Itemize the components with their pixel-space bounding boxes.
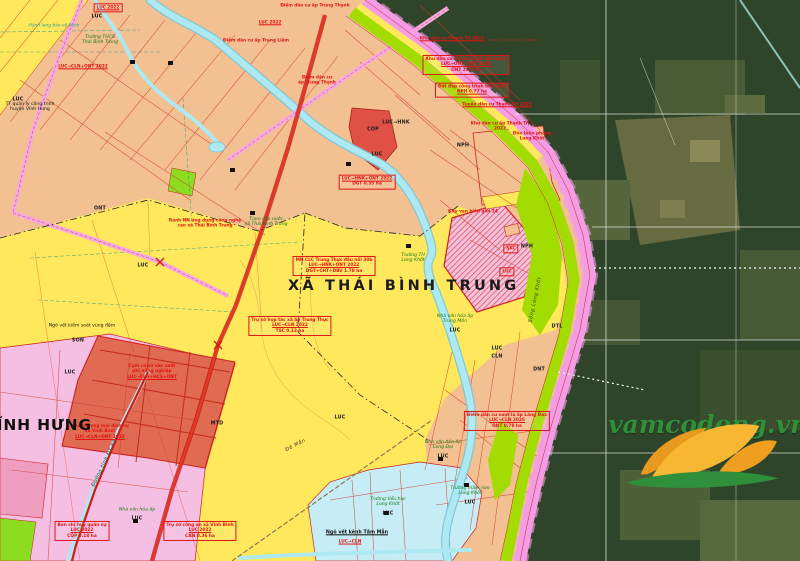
- planning-map-viewport[interactable]: LUCLUCLUCLUCLUCLUCLUC→HNKLUCCLNONTMTDSON…: [0, 0, 800, 561]
- commune-label: XÃ THÁI BÌNH TRUNG: [288, 278, 519, 294]
- green-parcel: [0, 518, 36, 561]
- watermark-logo: vamcodong.vn: [608, 418, 794, 439]
- pink-parcels-corner: [0, 458, 48, 518]
- green-parcel: [168, 168, 196, 196]
- rice-leaves-icon: [608, 418, 794, 488]
- neighbor-commune-label: VĨNH HƯNG: [0, 416, 92, 434]
